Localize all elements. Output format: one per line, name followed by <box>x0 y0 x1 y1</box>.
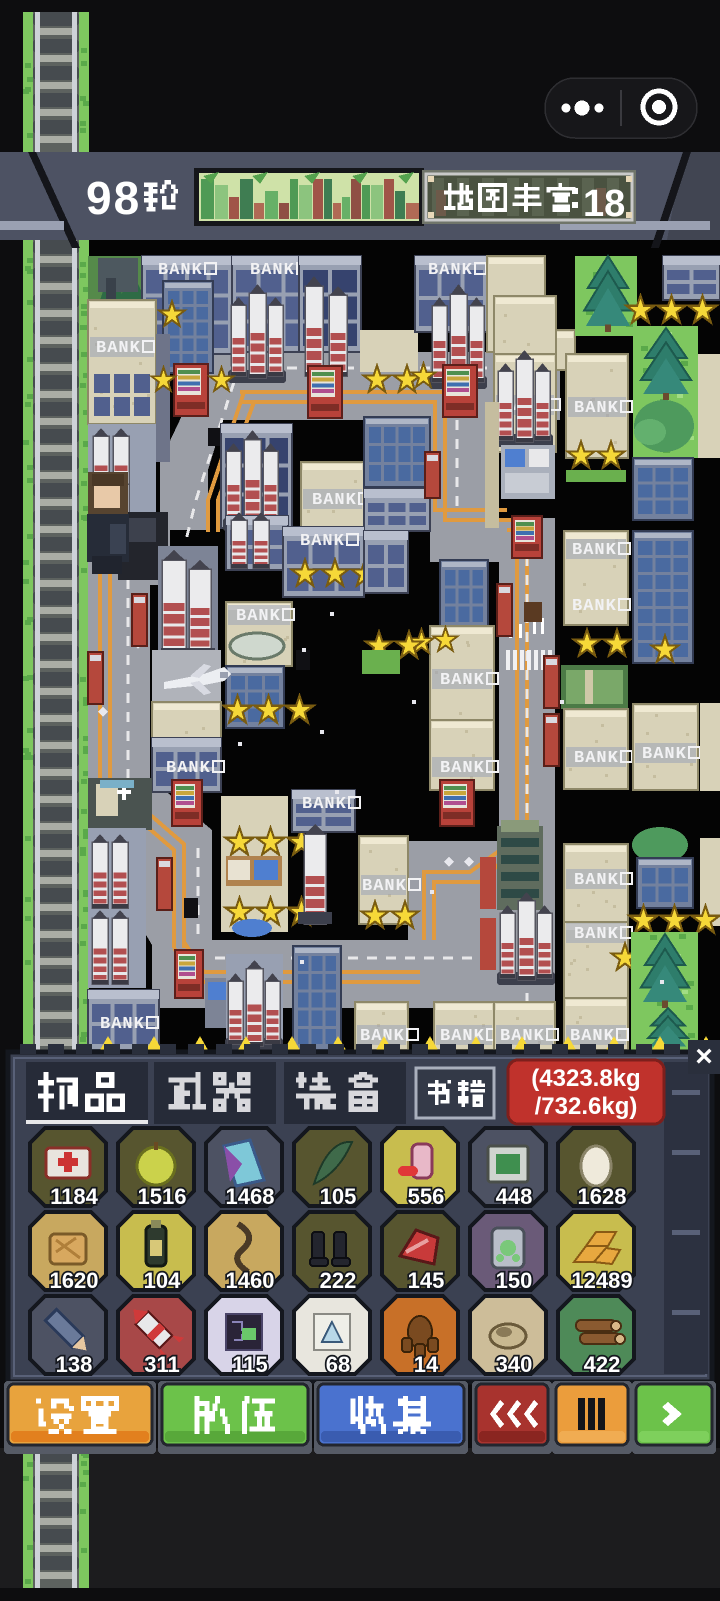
svg-text:BANK: BANK <box>574 871 619 890</box>
svg-text:138: 138 <box>56 1352 93 1377</box>
svg-text:/732.6kg): /732.6kg) <box>535 1093 638 1120</box>
svg-text:BANK: BANK <box>574 749 619 768</box>
svg-text:68: 68 <box>326 1352 350 1377</box>
svg-text:448: 448 <box>496 1184 533 1209</box>
svg-text:BANK: BANK <box>236 607 281 626</box>
svg-text:BANK: BANK <box>158 261 203 280</box>
svg-text:1184: 1184 <box>50 1184 98 1209</box>
svg-text:105: 105 <box>320 1184 357 1209</box>
svg-text:BANK: BANK <box>250 261 295 280</box>
svg-text:BANK: BANK <box>572 597 617 616</box>
svg-text:1628: 1628 <box>578 1184 627 1209</box>
svg-text:1516: 1516 <box>138 1184 187 1209</box>
svg-text:BANK: BANK <box>166 759 211 778</box>
svg-text:150: 150 <box>496 1268 533 1293</box>
svg-text:104: 104 <box>144 1268 181 1293</box>
svg-text:BANK: BANK <box>100 1015 145 1034</box>
svg-text:14: 14 <box>414 1352 439 1377</box>
svg-text:556: 556 <box>408 1184 445 1209</box>
svg-text:BANK: BANK <box>428 261 473 280</box>
svg-text:BANK: BANK <box>300 532 345 551</box>
svg-text:BANK: BANK <box>440 671 485 690</box>
svg-text:BANK: BANK <box>440 759 485 778</box>
svg-text:115: 115 <box>232 1352 268 1377</box>
svg-text:BANK: BANK <box>312 491 357 510</box>
svg-text:BANK: BANK <box>302 795 347 814</box>
svg-text:BANK: BANK <box>574 925 619 944</box>
svg-text:BANK: BANK <box>570 1027 615 1046</box>
svg-text:145: 145 <box>408 1268 445 1293</box>
svg-text:222: 222 <box>320 1268 357 1293</box>
svg-text:×: × <box>695 1040 713 1073</box>
svg-text:BANK: BANK <box>362 877 407 896</box>
svg-text:BANK: BANK <box>574 399 619 418</box>
svg-text:BANK: BANK <box>96 339 141 358</box>
svg-text:422: 422 <box>584 1352 621 1377</box>
svg-text:98: 98 <box>86 172 141 224</box>
svg-text:BANK: BANK <box>572 541 617 560</box>
svg-text:12489: 12489 <box>571 1268 632 1293</box>
svg-text:311: 311 <box>144 1352 180 1377</box>
svg-text:1460: 1460 <box>226 1268 275 1293</box>
svg-text:1620: 1620 <box>50 1268 99 1293</box>
svg-text:340: 340 <box>496 1352 533 1377</box>
svg-text:18: 18 <box>583 183 625 225</box>
svg-text:(4323.8kg: (4323.8kg <box>531 1065 640 1092</box>
svg-text:BANK: BANK <box>642 745 687 764</box>
svg-text:1468: 1468 <box>226 1184 275 1209</box>
